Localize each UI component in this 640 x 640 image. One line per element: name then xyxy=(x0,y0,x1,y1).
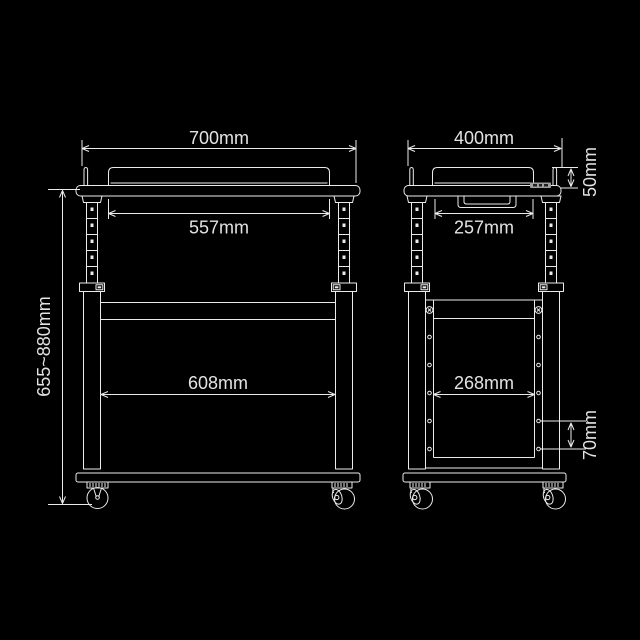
side-rear-caster xyxy=(541,482,565,509)
drawing-svg: 700mm 557mm 608mm 655~880mm xyxy=(0,0,640,640)
front-view: 700mm 557mm 608mm 655~880mm xyxy=(34,128,360,509)
side-base-bar xyxy=(403,473,566,482)
shelf-screw-front xyxy=(426,307,433,314)
front-tabletop xyxy=(76,186,360,197)
dim-side-shelf-depth: 268mm xyxy=(434,373,535,395)
shelf-hole-rail-rear xyxy=(537,335,541,451)
side-top-depth-label: 400mm xyxy=(454,128,514,148)
brand-label xyxy=(530,183,551,189)
side-rear-lip xyxy=(553,168,557,187)
front-top-width-label: 700mm xyxy=(189,128,249,148)
dim-side-lip-height: 50mm xyxy=(552,147,600,197)
front-height-range-label: 655~880mm xyxy=(34,296,54,397)
dim-front-shelf-width: 608mm xyxy=(101,373,335,395)
side-rail-depth-label: 257mm xyxy=(454,218,514,238)
front-shelf xyxy=(101,303,336,320)
side-lip-height-label: 50mm xyxy=(580,147,600,197)
side-front-lip xyxy=(410,168,414,187)
shelf-screw-rear xyxy=(535,307,542,314)
dim-side-rail-depth: 257mm xyxy=(435,199,533,238)
side-rail-profile xyxy=(433,168,534,187)
side-view: 400mm 50mm 257mm xyxy=(403,128,600,509)
front-base-bar xyxy=(76,473,360,482)
dim-side-hole-spacing: 70mm xyxy=(541,410,601,460)
dim-front-rail-width: 557mm xyxy=(109,199,330,238)
side-hole-spacing-label: 70mm xyxy=(580,410,600,460)
front-left-lip xyxy=(84,168,88,187)
side-shelf-depth-label: 268mm xyxy=(454,373,514,393)
shelf-hole-rail-front xyxy=(428,335,432,451)
dim-front-top-width: 700mm xyxy=(82,128,356,183)
side-under-tray xyxy=(458,196,516,208)
side-front-caster xyxy=(408,482,432,509)
dim-side-top-depth: 400mm xyxy=(408,128,562,167)
front-left-leg xyxy=(80,196,105,469)
front-back-rail xyxy=(109,168,330,187)
front-shelf-width-label: 608mm xyxy=(188,373,248,393)
front-rail-width-label: 557mm xyxy=(189,218,249,238)
front-right-leg xyxy=(332,196,357,469)
front-right-caster xyxy=(330,482,354,509)
cart-dimension-drawing: 700mm 557mm 608mm 655~880mm xyxy=(0,0,640,640)
